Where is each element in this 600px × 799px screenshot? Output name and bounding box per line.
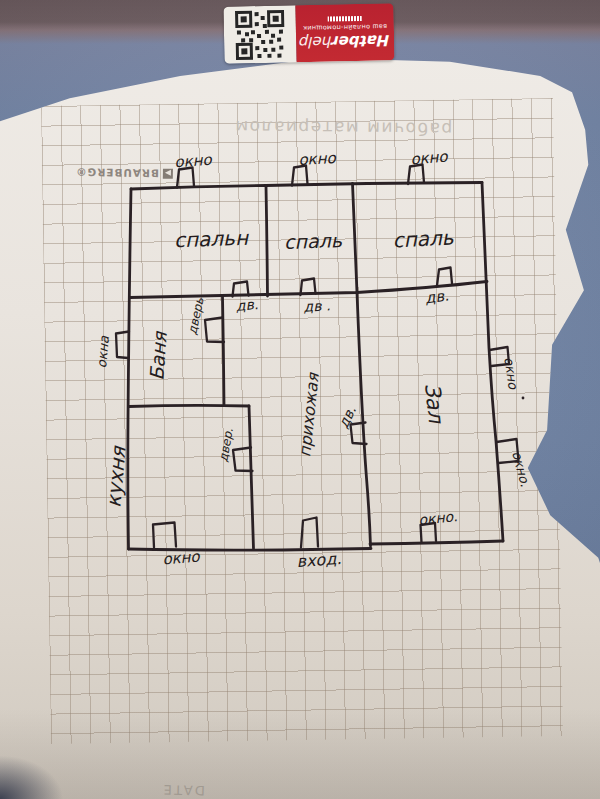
brauberg-brand: BRAUBERG® (75, 166, 173, 180)
brauberg-logo-icon (163, 169, 173, 179)
sticker-brand: Hatberhelp (300, 33, 391, 50)
photo-corner-shadow (0, 719, 110, 799)
sticker-red-panel: Hatberhelp ваш онлайн-помощник (295, 3, 394, 62)
brauberg-brand-text: BRAUBERG® (75, 166, 159, 179)
window-label-top-1: окно (174, 151, 212, 172)
photo-of-notebook: рабочим материалом BRAUBERG® DATE (0, 0, 600, 799)
door-label-bedroom-3: дв. (424, 286, 450, 307)
room-label-hall: Зал (420, 382, 448, 424)
qr-code-icon (223, 5, 296, 63)
room-label-banya: Баня (145, 331, 170, 381)
qr-pattern (234, 9, 285, 60)
sticker-text-block: Hatberhelp ваш онлайн-помощник (295, 3, 394, 62)
window-label-bottom-left: окно (162, 547, 201, 568)
sticker-barcode-icon (328, 16, 362, 22)
entrance-label: вход. (296, 549, 342, 571)
notebook-print-top: рабочим материалом (234, 117, 453, 139)
window-label-left: окна (94, 335, 112, 368)
sticker-brand-bold: Hatber (332, 32, 391, 51)
door-label-bedroom-2: дв . (303, 297, 331, 314)
window-label-top-2: окно (298, 149, 336, 169)
sticker-brand-light: help (300, 33, 333, 52)
room-label-bedroom-3: спаль (392, 225, 454, 252)
room-label-bedroom-1: спальн (174, 226, 249, 253)
date-print: DATE (161, 782, 205, 798)
window-label-top-3: окно (410, 147, 449, 168)
door-label-bedroom-1: дв. (235, 296, 259, 314)
room-label-bedroom-2: спаль (284, 229, 343, 253)
hatber-help-sticker: Hatberhelp ваш онлайн-помощник (223, 3, 394, 64)
